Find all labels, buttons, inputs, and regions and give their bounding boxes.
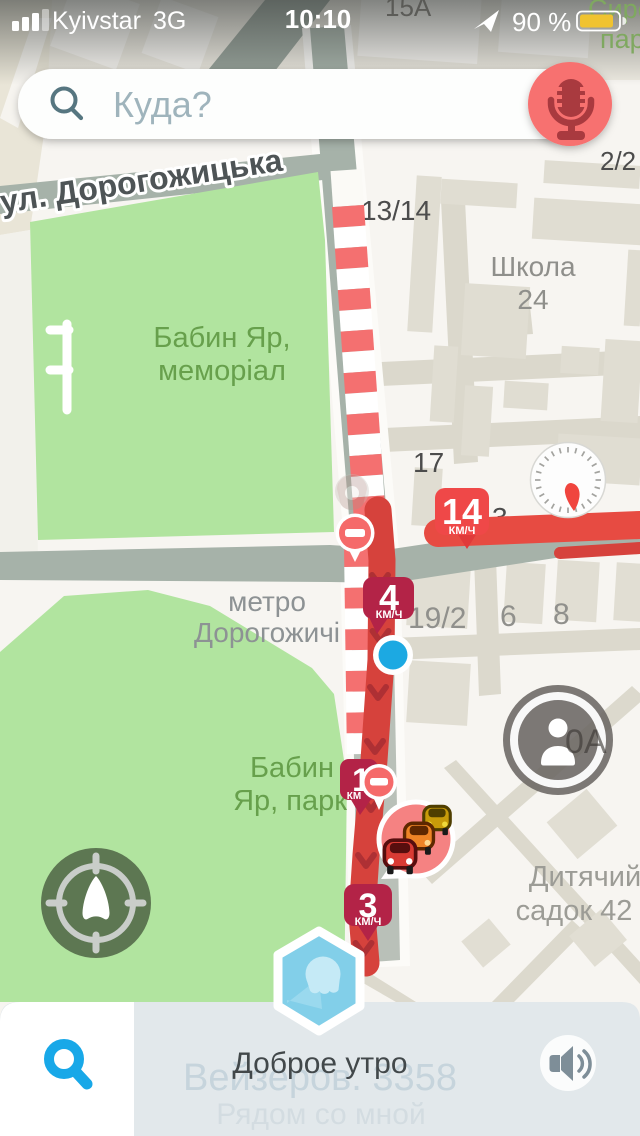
svg-text:Яр, парк: Яр, парк	[233, 785, 347, 817]
svg-text:19/2: 19/2	[408, 602, 466, 635]
svg-text:садок 42: садок 42	[516, 895, 633, 927]
svg-text:8: 8	[553, 598, 570, 631]
svg-text:КМ: КМ	[347, 791, 361, 802]
svg-text:меморіал: меморіал	[158, 355, 286, 387]
svg-text:3G: 3G	[153, 7, 186, 35]
svg-text:Доброе утро: Доброе утро	[232, 1047, 407, 1080]
svg-text:15А: 15А	[385, 0, 432, 22]
svg-text:КМ/Ч: КМ/Ч	[376, 609, 403, 621]
svg-text:13/14: 13/14	[361, 195, 431, 226]
svg-text:Бабин Яр,: Бабин Яр,	[153, 322, 290, 354]
svg-text:Дитячий: Дитячий	[529, 861, 640, 893]
svg-text:метро: метро	[228, 586, 306, 617]
svg-text:КМ/Ч: КМ/Ч	[449, 525, 476, 537]
svg-text:Дорогожичі: Дорогожичі	[194, 617, 340, 648]
svg-text:Школа: Школа	[490, 251, 576, 282]
svg-text:0A: 0A	[565, 723, 607, 761]
svg-text:Куда?: Куда?	[113, 84, 212, 125]
svg-text:90 %: 90 %	[512, 7, 571, 37]
svg-text:Рядом со мной: Рядом со мной	[216, 1098, 425, 1131]
svg-text:Бабин: Бабин	[250, 752, 334, 784]
svg-text:10:10: 10:10	[285, 4, 352, 34]
svg-text:КМ/Ч: КМ/Ч	[355, 916, 382, 928]
svg-text:Kyivstar: Kyivstar	[52, 7, 141, 35]
svg-text:6: 6	[500, 600, 517, 633]
svg-text:24: 24	[517, 284, 548, 315]
svg-text:17: 17	[413, 447, 444, 478]
svg-text:2/2: 2/2	[600, 146, 636, 176]
